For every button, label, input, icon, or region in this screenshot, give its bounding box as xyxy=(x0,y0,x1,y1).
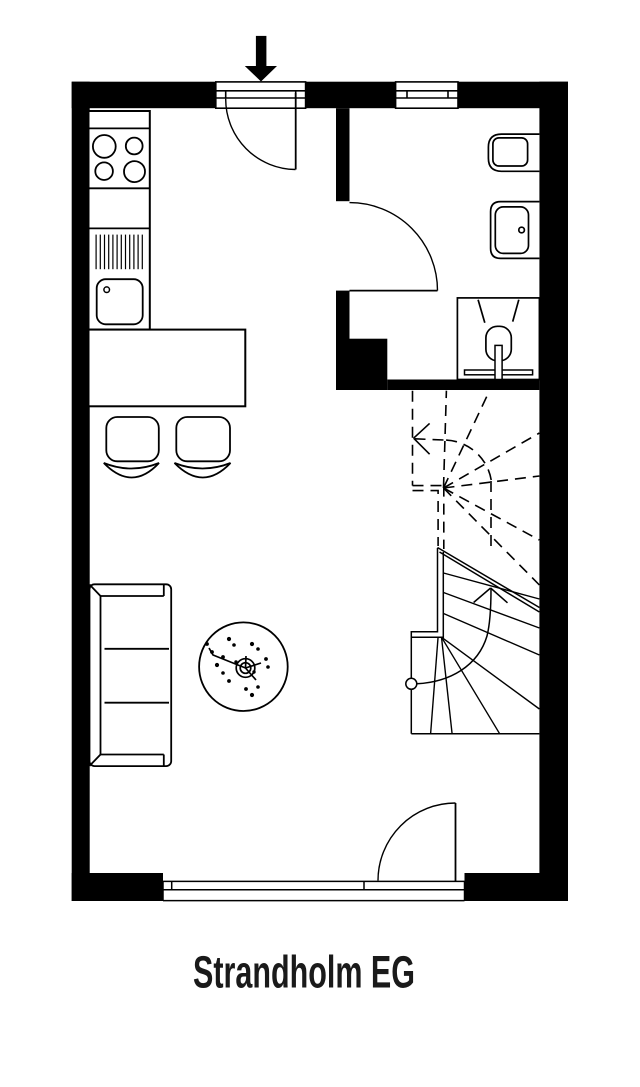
svg-text:Strandholm EG: Strandholm EG xyxy=(193,947,415,998)
